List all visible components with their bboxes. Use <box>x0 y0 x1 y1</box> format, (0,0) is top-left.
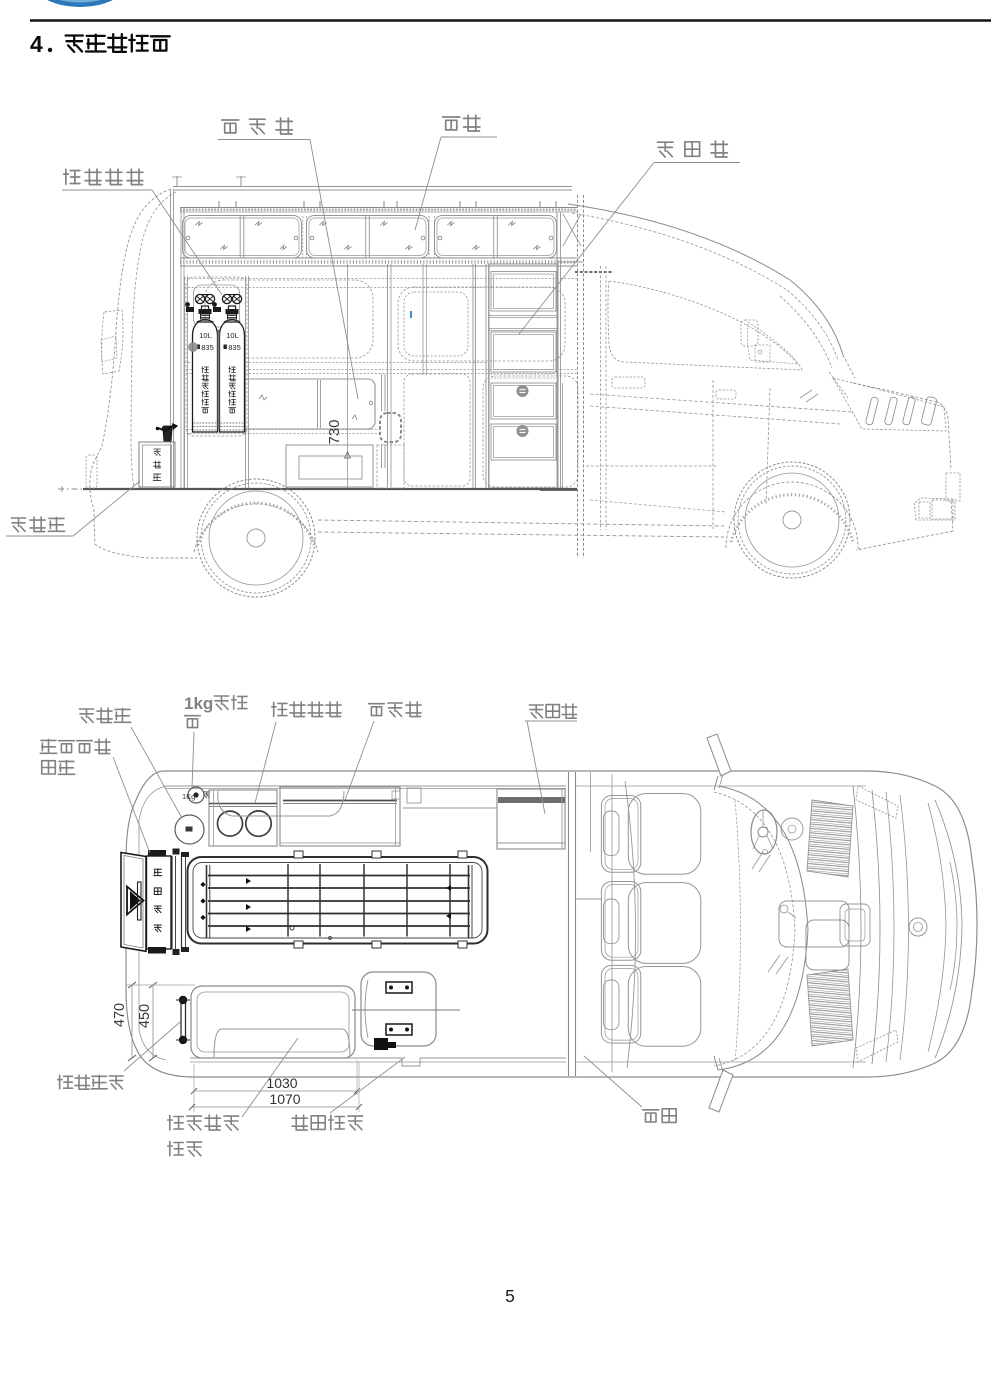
svg-text:4: 4 <box>30 31 43 57</box>
svg-text:1030: 1030 <box>266 1075 297 1091</box>
svg-text:10L: 10L <box>199 331 212 340</box>
svg-text:450: 450 <box>137 1004 153 1028</box>
svg-text:10L: 10L <box>226 331 239 340</box>
svg-text:1070: 1070 <box>269 1091 300 1107</box>
svg-text:1kg: 1kg <box>184 694 213 713</box>
svg-text:730: 730 <box>326 419 343 444</box>
svg-text:835: 835 <box>228 343 241 352</box>
svg-text:5: 5 <box>505 1286 515 1306</box>
svg-text:1Kg: 1Kg <box>182 792 195 801</box>
svg-text:470: 470 <box>112 1003 128 1027</box>
svg-text:835: 835 <box>201 343 214 352</box>
